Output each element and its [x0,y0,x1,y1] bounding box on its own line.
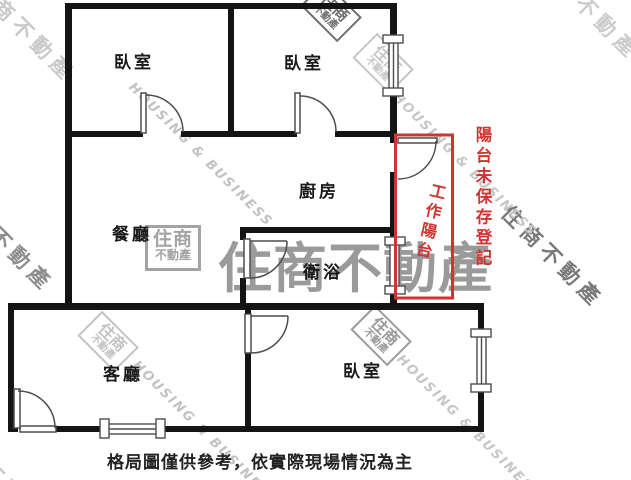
door-bathroom [244,239,287,278]
label-bathroom: 衛浴 [303,258,343,283]
door-kitchen-balcony [398,138,437,179]
door-living-entry [14,389,56,432]
window-living [100,419,165,438]
door-bedroom-top-left [141,93,183,133]
wall-bottom-c [165,426,484,432]
wall-bedrooms-bottom-c [335,131,397,137]
label-kitchen: 廚房 [299,177,339,202]
label-dining: 餐廳 [112,220,152,245]
wall-bedroom-divider [228,3,234,137]
walls [8,3,484,432]
wall-bedrooms-bottom-a [65,131,143,137]
label-living: 客廳 [103,360,143,385]
window-bedroom-top-right [383,35,403,96]
label-bedroom-bottom: 臥室 [343,357,383,382]
wall-living-left [8,303,14,432]
door-bedroom-top-right [295,93,336,133]
wall-bottom-divider-b [245,353,251,432]
wall-bath-left-a [240,227,246,240]
wall-bedrooms-bottom-b [181,131,297,137]
wall-left-upper [65,3,72,310]
wall-bath-top [240,227,397,233]
floorplan-image: 住商不動產 住商不動產 住商不動產 住商不動產 住商不動產 HOUSING & … [0,0,631,480]
wall-bottom-divider-a [245,303,251,314]
label-bedroom-top-right: 臥室 [284,49,324,74]
window-bedroom-bottom [471,329,491,392]
label-bedroom-top-left: 臥室 [114,48,154,73]
wall-bottom-b [56,426,101,432]
disclaimer-caption: 格局圖僅供參考，依實際現場情況為主 [107,448,413,473]
door-bedroom-bottom [245,314,288,353]
label-balcony-unregistered-note: 陽台未保存登記 [470,126,494,270]
